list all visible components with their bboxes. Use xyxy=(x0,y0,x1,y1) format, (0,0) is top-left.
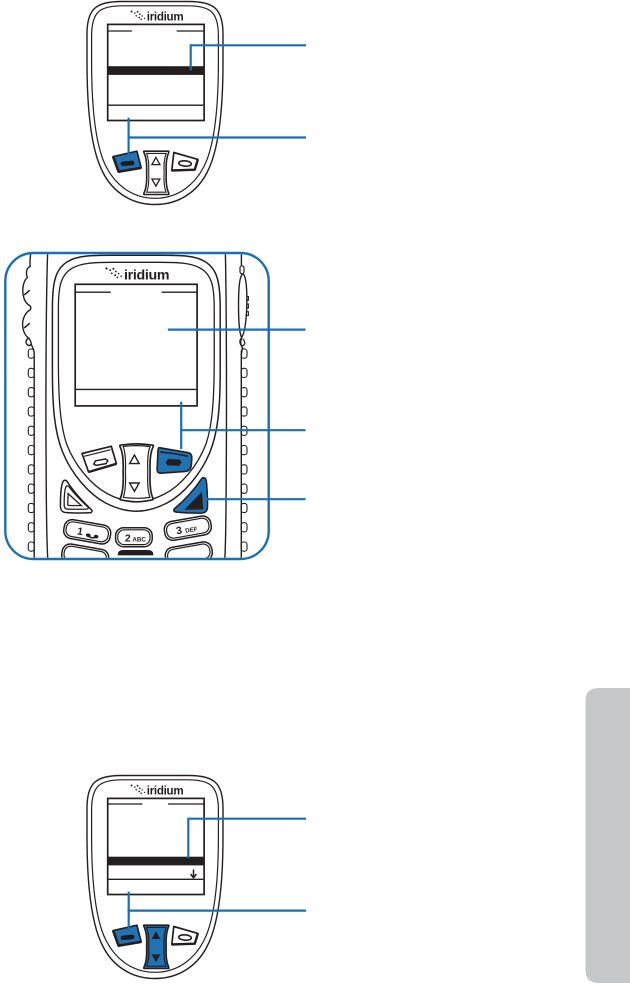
svg-text:2: 2 xyxy=(125,532,131,544)
svg-text:iridium: iridium xyxy=(124,267,169,283)
svg-text:iridium: iridium xyxy=(147,11,184,24)
svg-text:iridium: iridium xyxy=(147,785,184,798)
svg-text:ABC: ABC xyxy=(132,536,146,543)
